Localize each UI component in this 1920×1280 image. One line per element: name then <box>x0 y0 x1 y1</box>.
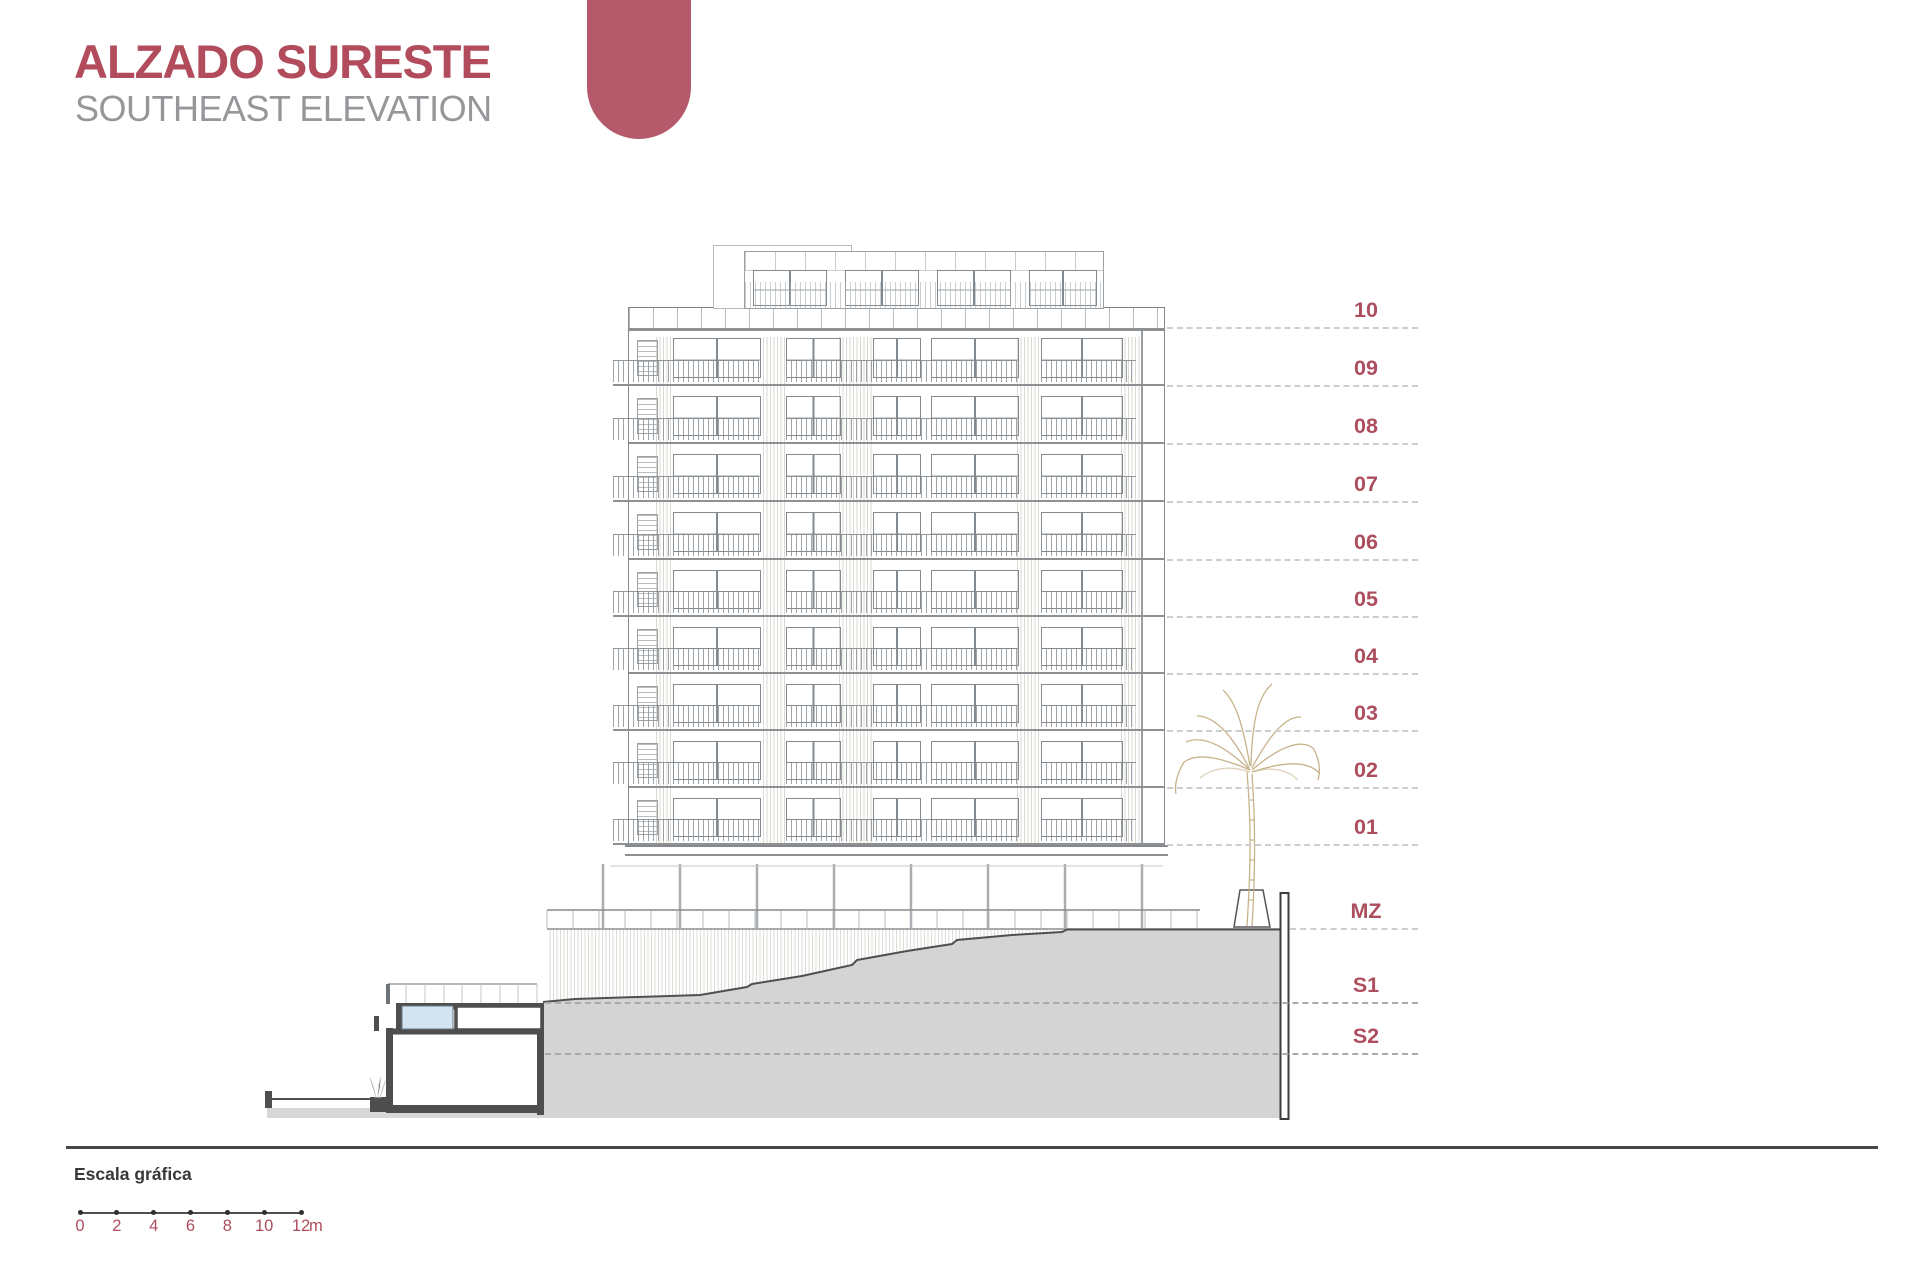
balcony-railing <box>1041 476 1136 498</box>
balcony-railing <box>786 476 1017 498</box>
balcony-railing <box>1041 648 1136 670</box>
penthouse-panel-joints <box>745 252 1103 271</box>
balcony-railing <box>786 418 1017 440</box>
balcony-railing <box>1041 591 1136 613</box>
balcony-railing <box>786 534 1017 556</box>
level-label: S2 <box>1338 1024 1394 1049</box>
scale-tick-dot <box>225 1210 230 1215</box>
tower-facade <box>628 307 1165 852</box>
balcony-railing <box>1041 418 1136 440</box>
balcony-railing <box>1041 762 1136 784</box>
floor-slab-line <box>613 729 1164 732</box>
scale-tick-number: 4 <box>136 1217 172 1236</box>
penthouse-railing <box>745 282 1103 308</box>
scale-tick-number: 8 <box>209 1217 245 1236</box>
mezzanine-railing <box>547 910 1200 928</box>
balcony-railing <box>613 360 759 382</box>
retaining-wall <box>1281 893 1289 1119</box>
pilotis-columns <box>603 864 1142 928</box>
level-dash-line <box>1167 559 1418 561</box>
floor-slab-line <box>613 384 1164 387</box>
tower-floors <box>629 307 1164 852</box>
level-dash-line <box>1167 385 1418 387</box>
penthouse <box>744 251 1104 309</box>
balcony-railing <box>1041 819 1136 841</box>
floor-slab-line <box>629 328 1164 331</box>
level-dash-line <box>545 1053 1418 1055</box>
level-label: 10 <box>1338 298 1394 323</box>
floor-slab-line <box>629 786 1164 789</box>
level-label: MZ <box>1338 899 1394 924</box>
basement-section <box>370 984 544 1115</box>
balcony-railing <box>613 705 759 727</box>
balcony-railing <box>786 591 1017 613</box>
balcony-railing <box>786 360 1017 382</box>
scale-tick-dot <box>78 1210 83 1215</box>
balcony-railing <box>1041 360 1136 382</box>
scale-tick-dot <box>262 1210 267 1215</box>
scale-tick-dot <box>188 1210 193 1215</box>
balcony-railing <box>786 762 1017 784</box>
level-label: 07 <box>1338 472 1394 497</box>
level-dash-line <box>1290 928 1418 930</box>
balcony-railing <box>1041 705 1136 727</box>
floor-slab-line <box>629 442 1164 445</box>
street-bollard <box>265 1091 272 1108</box>
scale-unit-label: m <box>309 1217 323 1236</box>
level-dash-line <box>1167 730 1418 732</box>
level-label: 04 <box>1338 644 1394 669</box>
level-dash-line <box>1167 616 1418 618</box>
section-room-upper <box>456 1006 542 1030</box>
level-dash-line <box>1167 443 1418 445</box>
pool-water <box>402 1006 453 1029</box>
level-dash-line <box>1167 844 1418 846</box>
floor-slab-line <box>629 558 1164 561</box>
level-label: 01 <box>1338 815 1394 840</box>
level-label: S1 <box>1338 973 1394 998</box>
level-label: 08 <box>1338 414 1394 439</box>
scale-tick-dot <box>299 1210 304 1215</box>
balcony-railing <box>613 534 759 556</box>
balcony-railing <box>613 648 759 670</box>
level-dash-line <box>1167 501 1418 503</box>
balcony-railing <box>786 705 1017 727</box>
level-label: 06 <box>1338 530 1394 555</box>
scale-tick-number: 0 <box>62 1217 98 1236</box>
floor-slab-line <box>613 615 1164 618</box>
level-label: 03 <box>1338 701 1394 726</box>
elevation-sheet: { "header": { "title": "ALZADO SURESTE",… <box>0 0 1920 1280</box>
tower-bottom-slab <box>625 845 1168 856</box>
balcony-railing <box>613 819 759 841</box>
level-dash-line <box>1167 327 1418 329</box>
balcony-railing <box>613 762 759 784</box>
level-label: 09 <box>1338 356 1394 381</box>
balcony-railing <box>786 648 1017 670</box>
scale-tick-number: 10 <box>246 1217 282 1236</box>
floor-slab-line <box>629 672 1164 675</box>
level-label: 05 <box>1338 587 1394 612</box>
level-label: 02 <box>1338 758 1394 783</box>
balcony-railing <box>613 418 759 440</box>
level-dash-line <box>1167 787 1418 789</box>
balcony-railing <box>1041 534 1136 556</box>
balcony-railing <box>613 476 759 498</box>
scale-bar-heading: Escala gráfica <box>74 1164 192 1185</box>
footer-divider-line <box>66 1146 1878 1149</box>
balcony-railing <box>786 819 1017 841</box>
scale-tick-number: 2 <box>99 1217 135 1236</box>
level-dash-line <box>1167 673 1418 675</box>
scale-tick-number: 6 <box>173 1217 209 1236</box>
level-dash-line <box>545 1002 1418 1004</box>
balcony-railing <box>613 591 759 613</box>
floor-slab-line <box>613 500 1164 503</box>
